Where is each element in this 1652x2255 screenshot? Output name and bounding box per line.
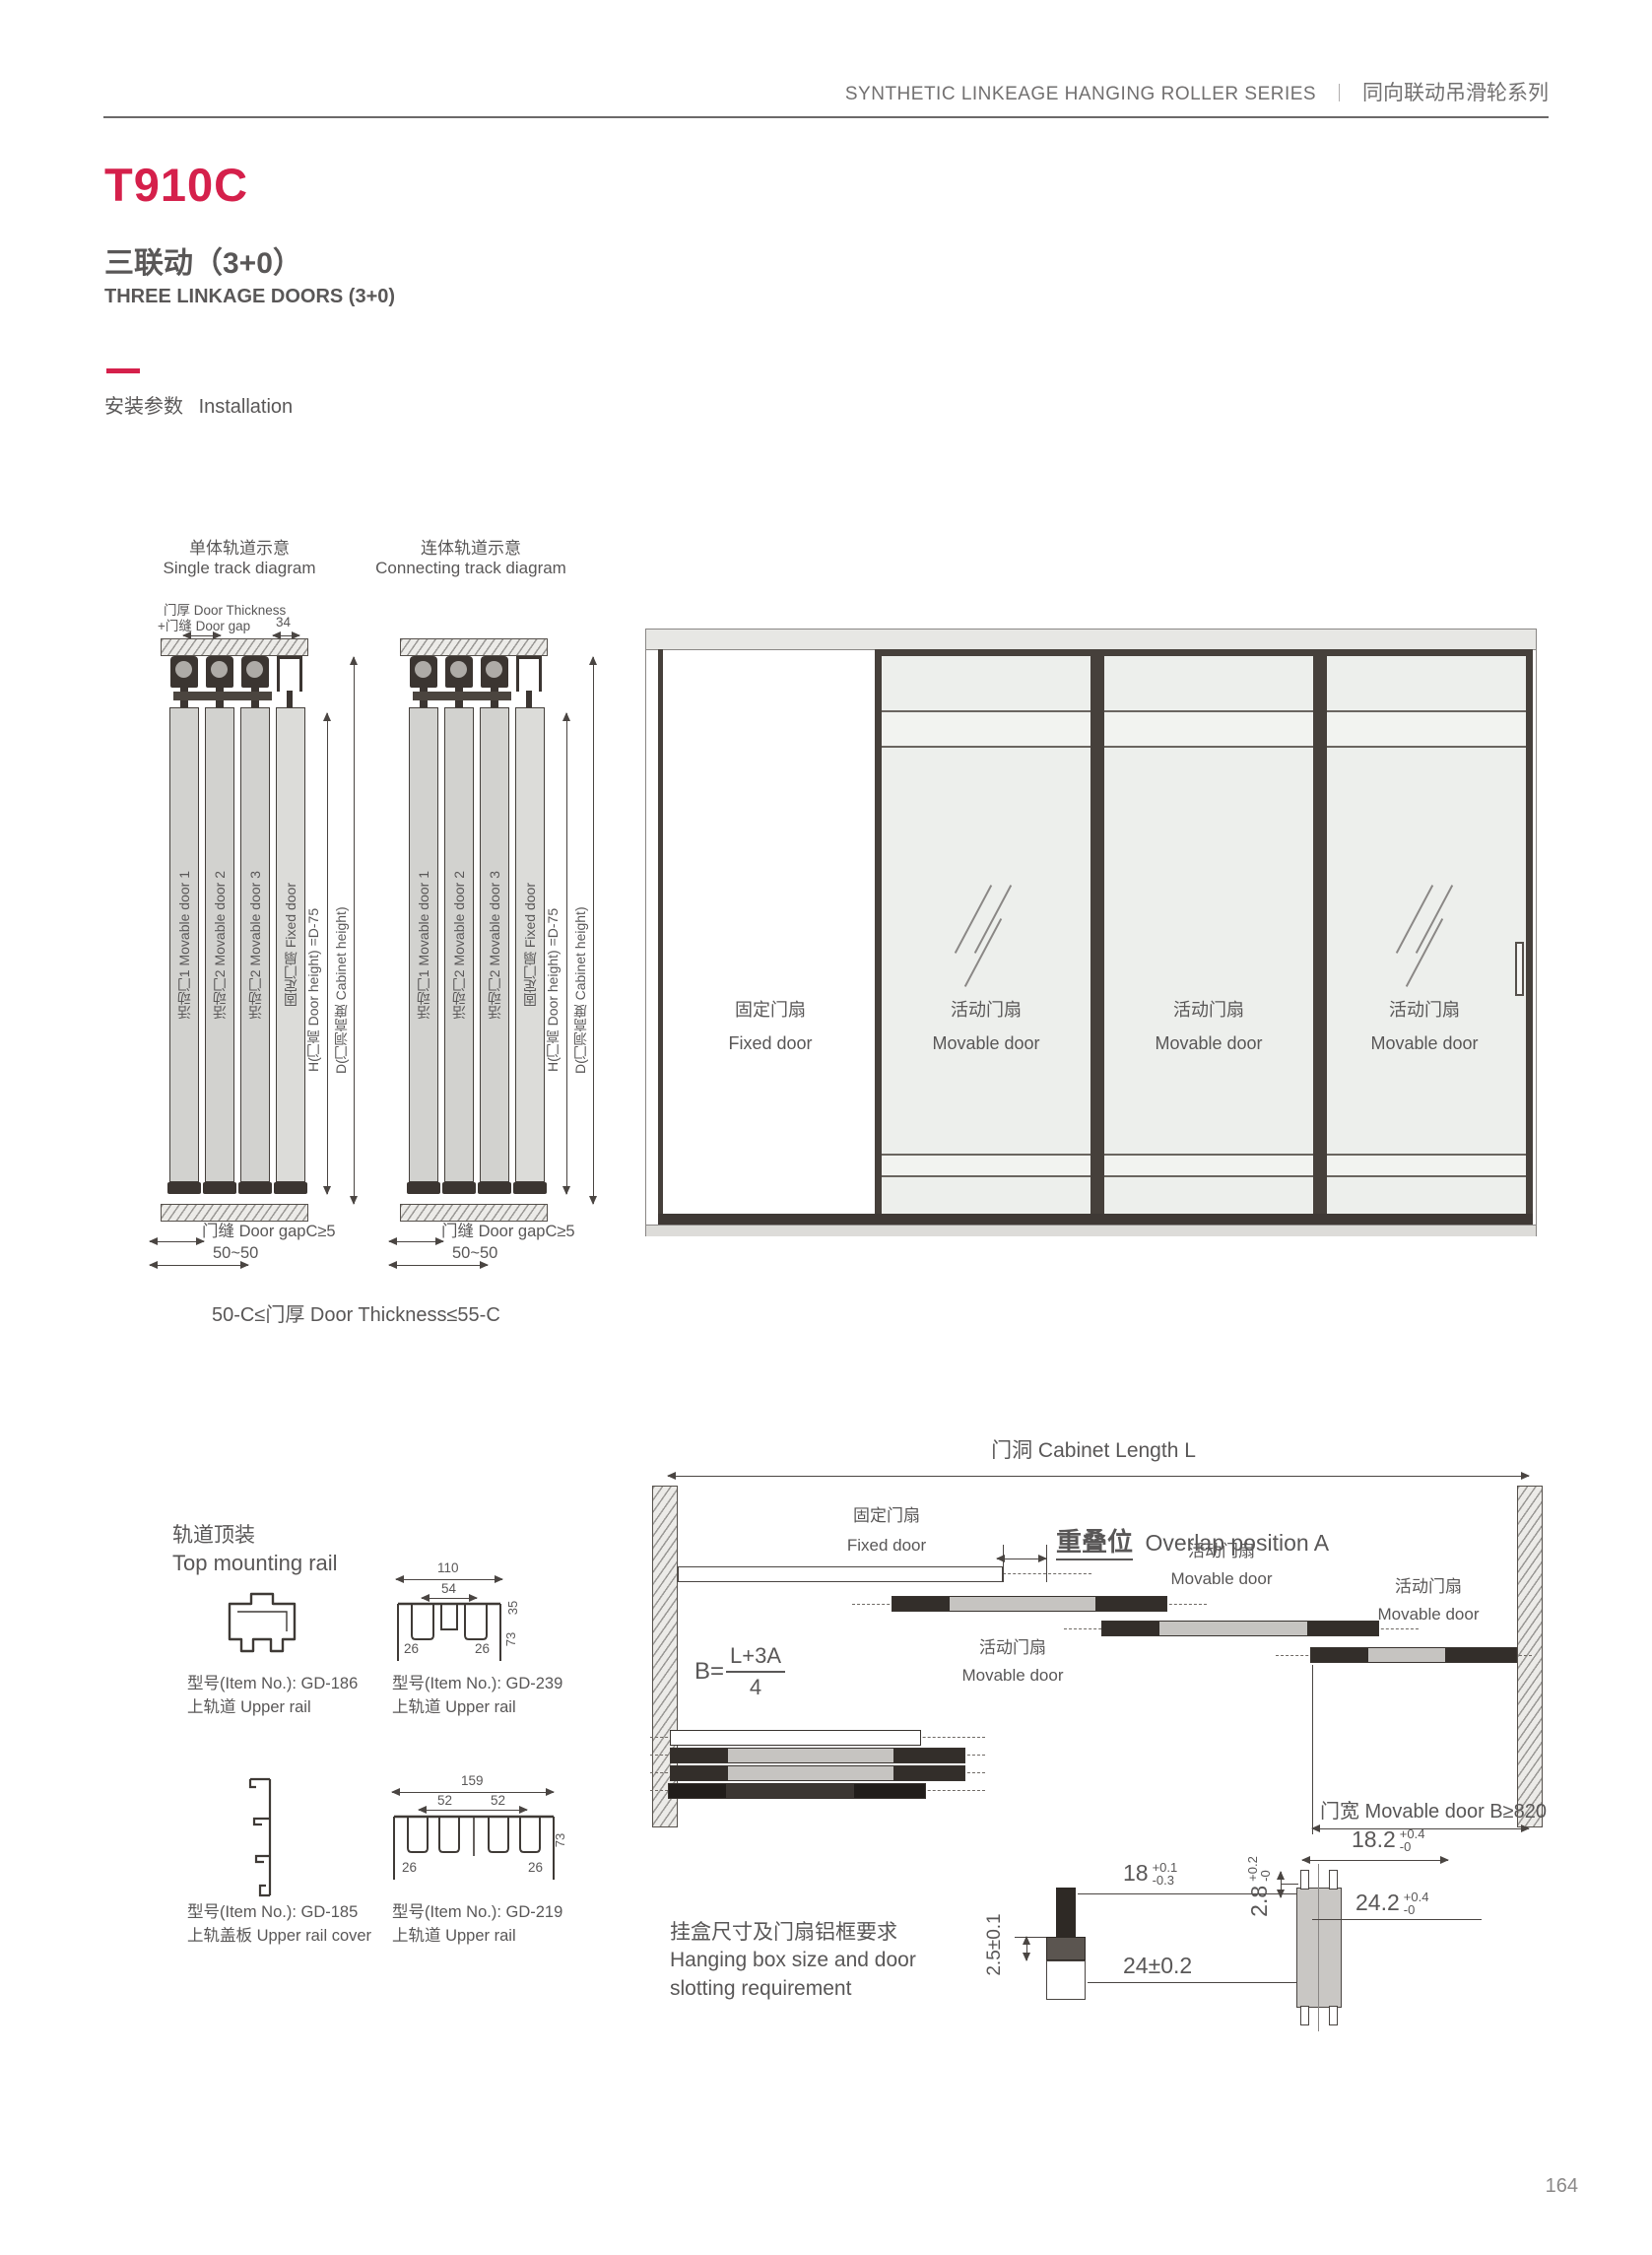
conn-gap-dim (389, 1241, 443, 1242)
movable-door-2 (1097, 649, 1320, 1214)
gd239-name: 上轨道 Upper rail (392, 1696, 562, 1720)
door-foot (407, 1182, 440, 1194)
conn-door-label-1: 活动门1 Movable door 1 (414, 871, 433, 1019)
gd219-dim-26b: 26 (528, 1860, 543, 1875)
catalog-page: SYNTHETIC LINKEAGE HANGING ROLLER SERIES… (0, 0, 1652, 2255)
conn-floor (400, 1204, 548, 1222)
movable-label-cn: 活动门扇 (1341, 996, 1508, 1022)
gd219-dim-52a: 52 (437, 1793, 452, 1808)
movable-label-cn: 活动门扇 (902, 996, 1070, 1022)
dim-242: 24.2 +0.4 -0 (1355, 1890, 1428, 1916)
linkage-carriage (413, 692, 511, 700)
conn-dim-h-line (566, 713, 567, 1194)
dim-18-tol: +0.1 -0.3 (1153, 1861, 1178, 1887)
gd185-name: 上轨盖板 Upper rail cover (187, 1925, 371, 1949)
dim-18-val: 18 (1123, 1860, 1149, 1887)
layout-movable-label-3: 活动门扇 Movable door (924, 1633, 1101, 1686)
gd219-dim-159: 159 (461, 1773, 484, 1788)
gd186-profile-drawing (222, 1588, 302, 1659)
roller-icon (206, 656, 233, 688)
overlap-tick-right (1046, 1545, 1047, 1582)
single-5050-dim (150, 1265, 248, 1266)
conn-ceiling (400, 638, 548, 656)
door-foot (478, 1182, 511, 1194)
fixed-door-label-en: Fixed door (687, 1033, 854, 1054)
movable-door-label-2: 活动门扇 Movable door (1125, 996, 1292, 1054)
caption-conn-en: Connecting track diagram (353, 559, 589, 578)
dim-28-ticks (1281, 1872, 1282, 1897)
conn-dim-d-label: D(门洞高度 Cabinet height) (570, 798, 590, 1182)
gd185-profile-drawing (236, 1775, 280, 1899)
dim-28-tol: +0.2 -0 (1246, 1856, 1272, 1882)
thickness-note: 50-C≤门厚 Door Thickness≤55-C (212, 1298, 500, 1327)
gd239-item-no: 型号(Item No.): GD-239 (392, 1673, 562, 1696)
gd219-dim-73: 73 (552, 1819, 567, 1862)
caption-conn-cn: 连体轨道示意 (353, 534, 589, 559)
gd219-dim-159-line (392, 1792, 554, 1793)
caption-single-en: Single track diagram (126, 559, 353, 578)
layout-fixed-en: Fixed door (798, 1536, 975, 1556)
gd219-label: 型号(Item No.): GD-219 上轨道 Upper rail (392, 1901, 562, 1949)
cabinet-length-dim (668, 1476, 1529, 1477)
door-width-tick (1312, 1665, 1313, 1834)
single-gap-bottom: 门缝 Door gapC≥5 (202, 1222, 336, 1242)
header-series-en: SYNTHETIC LINKEAGE HANGING ROLLER SERIES (845, 84, 1316, 104)
pin-collar (1046, 1937, 1086, 1960)
dim-2_5-text: 2.5±0.1 (984, 1913, 1006, 1975)
conn-door-label-2: 活动门2 Movable door 2 (449, 871, 469, 1019)
door-rail-band (882, 710, 1090, 748)
roller-icon (410, 656, 437, 688)
dim-182: 18.2 +0.4 -0 (1352, 1826, 1424, 1853)
conn-dim-d-line (593, 657, 594, 1204)
gd219-item-no: 型号(Item No.): GD-219 (392, 1901, 562, 1925)
cabinet-length-title: 门洞 Cabinet Length L (896, 1434, 1290, 1464)
conn-door-label-3: 活动门2 Movable door 3 (485, 871, 504, 1019)
gd239-profile-drawing (394, 1596, 504, 1667)
gd185-item-no: 型号(Item No.): GD-185 (187, 1901, 371, 1925)
movable-door-1 (875, 649, 1097, 1214)
single-door-panel-3: 活动门2 Movable door 3 (240, 707, 270, 1182)
title-subtitle-cn: 三联动（3+0） (104, 238, 302, 282)
slot-notch-tr (1329, 1870, 1338, 1890)
fixed-track-channel-icon (277, 656, 302, 692)
dim-18-tol-dn: -0.3 (1153, 1874, 1178, 1887)
stack-bar-0 (670, 1730, 921, 1746)
dim-242-val: 24.2 (1355, 1890, 1400, 1916)
single-dim-h-label: H(门高 Door height) =D-75 (303, 798, 323, 1182)
layout-movable-label-2: 活动门扇 Movable door (1340, 1572, 1517, 1625)
caption-single-cn: 单体轨道示意 (126, 534, 353, 559)
hanging-box-note: 挂盒尺寸及门扇铝框要求 Hanging box size and door sl… (670, 1919, 916, 2003)
conn-5050-dim (389, 1265, 488, 1266)
pin-leader (1015, 1937, 1046, 1938)
right-wall (1517, 1486, 1543, 1827)
title-subtitle-en: THREE LINKAGE DOORS (3+0) (104, 286, 395, 308)
cabinet-base-strip (646, 1225, 1536, 1236)
door-foot (238, 1182, 272, 1194)
layout-mov1-cn: 活动门扇 (1133, 1537, 1310, 1561)
page-title: T910C (104, 158, 248, 212)
cabinet-front-view: 固定门扇 Fixed door 活动门扇 Movable door 活动门扇 M… (645, 629, 1537, 1236)
layout-mov1-en: Movable door (1133, 1569, 1310, 1589)
dim-28: 2.8 +0.2 -0 (1244, 1827, 1274, 1946)
caption-connecting-track: 连体轨道示意 Connecting track diagram (353, 534, 589, 578)
fixed-door-label-cn: 固定门扇 (687, 996, 854, 1022)
glass-mark-icon (1416, 885, 1453, 954)
single-fixed-panel: 固定门扇 Fixed door (276, 707, 305, 1182)
door-rail-band (1104, 1154, 1313, 1177)
hanging-note-cn: 挂盒尺寸及门扇铝框要求 (670, 1919, 916, 1947)
gd239-dim-26a: 26 (404, 1641, 419, 1656)
formula-b: B= L+3A 4 (694, 1643, 785, 1700)
movable-label-en: Movable door (902, 1033, 1070, 1054)
door-foot (274, 1182, 307, 1194)
single-dim-h-line (327, 713, 328, 1194)
roller-icon (170, 656, 198, 688)
door-width-note: 门宽 Movable door B≥820 (1320, 1795, 1547, 1824)
gd186-name: 上轨道 Upper rail (187, 1696, 358, 1720)
gd186-label: 型号(Item No.): GD-186 上轨道 Upper rail (187, 1673, 358, 1720)
gd239-dim-73: 73 (502, 1620, 518, 1659)
rails-heading-cn: 轨道顶装 (172, 1519, 338, 1549)
door-foot (442, 1182, 476, 1194)
formula-fraction: L+3A 4 (726, 1643, 785, 1700)
section-install: 安装参数 Installation (104, 390, 293, 419)
dim-182-tol: +0.4 -0 (1400, 1827, 1425, 1853)
single-ceiling (161, 638, 308, 656)
dim-182-tol-dn: -0 (1400, 1840, 1425, 1853)
door-rail-band (1104, 710, 1313, 748)
glass-mark-icon (974, 885, 1012, 954)
dim-242-tol-up: +0.4 (1404, 1890, 1429, 1903)
dim-242-leader (1312, 1919, 1482, 1920)
gd239-label: 型号(Item No.): GD-239 上轨道 Upper rail (392, 1673, 562, 1720)
conn-door-panel-2: 活动门2 Movable door 2 (444, 707, 474, 1182)
dim-18: 18 +0.1 -0.3 (1123, 1860, 1177, 1887)
conn-dim-h-label: H(门高 Door height) =D-75 (543, 798, 562, 1182)
movable-door-3 (1320, 649, 1533, 1214)
header-divider: ｜ (1331, 84, 1349, 103)
roller-icon (445, 656, 473, 688)
fixed-track-channel-icon (516, 656, 542, 692)
slot-notch-br (1329, 2006, 1338, 2025)
dim-182-leader (1302, 1860, 1448, 1861)
pin-stem (1056, 1888, 1076, 1941)
single-floor (161, 1204, 308, 1222)
gd185-label: 型号(Item No.): GD-185 上轨盖板 Upper rail cov… (187, 1901, 371, 1949)
dim-28-val: 2.8 (1246, 1886, 1273, 1917)
pin-base (1046, 1960, 1086, 2000)
caption-single-track: 单体轨道示意 Single track diagram (126, 534, 353, 578)
gd239-dim-35-text: 35 (505, 1601, 520, 1615)
cabinet-left-edge (658, 649, 663, 1214)
install-cn: 安装参数 (104, 396, 183, 418)
door-handle (1515, 942, 1524, 996)
slot-notch-bl (1300, 2006, 1309, 2025)
stack-bar-1 (670, 1748, 965, 1763)
stack-bar-3 (668, 1783, 926, 1799)
dim-24: 24±0.2 (1123, 1953, 1192, 1979)
fixed-door-bar (678, 1566, 1003, 1582)
single-34-dim (273, 635, 299, 636)
dim-182-val: 18.2 (1352, 1826, 1396, 1853)
gd239-dim-54: 54 (441, 1581, 456, 1596)
door-foot (203, 1182, 236, 1194)
single-gap-label: +门缝 Door gap (158, 615, 250, 634)
movable-label-en: Movable door (1341, 1033, 1508, 1054)
conn-5050: 50~50 (452, 1243, 497, 1264)
single-dim-d-label: D(门洞高度 Cabinet height) (331, 798, 351, 1182)
door-foot (167, 1182, 201, 1194)
linkage-carriage (173, 692, 272, 700)
roller-icon (241, 656, 269, 688)
gd219-dim-52b: 52 (491, 1793, 505, 1808)
page-header: SYNTHETIC LINKEAGE HANGING ROLLER SERIES… (0, 77, 1549, 106)
conn-fixed-panel: 固定门扇 Fixed door (515, 707, 545, 1182)
single-door-label-3: 活动门2 Movable door 3 (245, 871, 265, 1019)
gd239-dim-73-text: 73 (503, 1632, 518, 1646)
conn-door-panel-3: 活动门2 Movable door 3 (480, 707, 509, 1182)
formula-numerator: L+3A (726, 1643, 785, 1673)
overlap-cn: 重叠位 (1056, 1527, 1133, 1560)
dim-28-tol-dn: -0 (1259, 1856, 1272, 1882)
single-5050: 50~50 (213, 1243, 258, 1264)
linkage-rail-2 (1101, 1621, 1379, 1636)
layout-fixed-cn: 固定门扇 (798, 1501, 975, 1526)
dim-2_5: 2.5±0.1 (983, 1890, 1007, 1999)
dim-18-tol-up: +0.1 (1153, 1861, 1178, 1874)
layout-mov3-en: Movable door (924, 1666, 1101, 1686)
conn-gap-bottom: 门缝 Door gapC≥5 (441, 1222, 575, 1242)
formula-b-prefix: B= (694, 1658, 724, 1686)
glass-mark-icon (1406, 918, 1443, 987)
door-foot (513, 1182, 547, 1194)
rails-heading: 轨道顶装 Top mounting rail (172, 1519, 338, 1576)
gd219-name: 上轨道 Upper rail (392, 1925, 562, 1949)
single-door-panel-1: 活动门1 Movable door 1 (169, 707, 199, 1182)
door-rail-band (1327, 710, 1526, 748)
movable-door-label-3: 活动门扇 Movable door (1341, 996, 1508, 1054)
slot-tube (1296, 1888, 1342, 2008)
single-dim-d-line (354, 657, 355, 1204)
gd239-dim-110: 110 (437, 1560, 459, 1575)
hanging-note-en1: Hanging box size and door (670, 1947, 916, 1974)
single-door-panel-2: 活动门2 Movable door 2 (205, 707, 234, 1182)
gd219-dim-26a: 26 (402, 1860, 417, 1875)
layout-movable-label-1: 活动门扇 Movable door (1133, 1537, 1310, 1589)
gd186-item-no: 型号(Item No.): GD-186 (187, 1673, 358, 1696)
fixed-door-label: 固定门扇 Fixed door (687, 996, 854, 1054)
conn-door-panel-1: 活动门1 Movable door 1 (409, 707, 438, 1182)
overlap-dim (997, 1559, 1046, 1559)
single-door-label-2: 活动门2 Movable door 2 (210, 871, 230, 1019)
formula-denominator: 4 (750, 1673, 761, 1700)
movable-label-cn: 活动门扇 (1125, 996, 1292, 1022)
install-en: Installation (199, 396, 294, 418)
movable-door-label-1: 活动门扇 Movable door (902, 996, 1070, 1054)
single-dim-34: 34 (276, 615, 291, 630)
conn-fixed-label: 固定门扇 Fixed door (520, 883, 540, 1007)
roller-icon (481, 656, 508, 688)
layout-fixed-label: 固定门扇 Fixed door (798, 1501, 975, 1556)
door-rail-band (882, 1154, 1090, 1177)
cabinet-top-rail (646, 630, 1536, 650)
header-series-cn: 同向联动吊滑轮系列 (1362, 82, 1549, 104)
dim-242-tol-dn: -0 (1404, 1903, 1429, 1916)
single-fixed-label: 固定门扇 Fixed door (281, 883, 300, 1007)
layout-mov2-cn: 活动门扇 (1340, 1572, 1517, 1597)
layout-mov3-cn: 活动门扇 (924, 1633, 1101, 1658)
fixed-door-dash (1003, 1573, 1091, 1574)
linkage-rail-1 (892, 1596, 1167, 1612)
dim-242-tol: +0.4 -0 (1404, 1890, 1429, 1916)
page-number: 164 (1517, 2175, 1578, 2198)
hanging-note-en2: slotting requirement (670, 1975, 916, 2003)
single-door-label-1: 活动门1 Movable door 1 (174, 871, 194, 1019)
gd239-dim-110-line (396, 1579, 502, 1580)
slot-centerline (1318, 1864, 1319, 2031)
rails-heading-en: Top mounting rail (172, 1551, 338, 1576)
single-gap-dim (150, 1241, 204, 1242)
stack-bar-2 (670, 1765, 965, 1781)
cabinet-bottom-rail (658, 1214, 1533, 1225)
linkage-rail-3 (1310, 1647, 1517, 1663)
slot-notch-tl (1300, 1870, 1309, 1890)
gd219-dim-73-text: 73 (553, 1833, 567, 1847)
dim-28-leader (1281, 1884, 1298, 1885)
overlap-tick-left (1003, 1545, 1004, 1582)
dim-182-tol-up: +0.4 (1400, 1827, 1425, 1840)
header-rule (103, 116, 1549, 118)
single-thickness-dim (183, 635, 221, 636)
pin-25-dim (1026, 1937, 1027, 1960)
gd239-dim-26b: 26 (475, 1641, 490, 1656)
movable-label-en: Movable door (1125, 1033, 1292, 1054)
glass-mark-icon (964, 918, 1002, 987)
section-accent-dash (106, 368, 140, 373)
door-rail-band (1327, 1154, 1526, 1177)
